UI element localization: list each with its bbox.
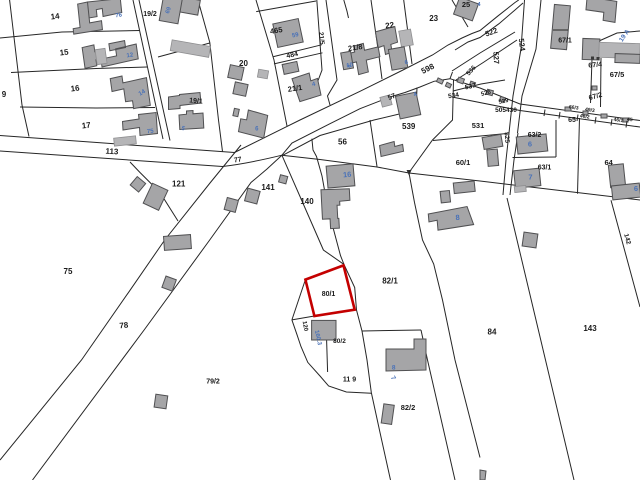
svg-text:22: 22 (385, 20, 396, 30)
svg-text:65: 65 (568, 117, 576, 124)
svg-text:19/2: 19/2 (143, 11, 157, 18)
svg-text:56: 56 (338, 138, 347, 147)
svg-text:17: 17 (81, 120, 91, 130)
svg-text:8: 8 (392, 365, 396, 372)
svg-text:84: 84 (488, 328, 497, 337)
svg-text:75: 75 (64, 267, 73, 276)
svg-text:6: 6 (634, 184, 638, 193)
svg-text:78: 78 (119, 321, 129, 331)
svg-text:45: 45 (627, 117, 634, 124)
svg-text:79/2: 79/2 (206, 379, 220, 386)
svg-text:82/1: 82/1 (382, 277, 398, 286)
svg-text:67/5: 67/5 (610, 70, 625, 79)
svg-text:63/2: 63/2 (528, 132, 542, 139)
svg-text:6: 6 (528, 140, 532, 149)
svg-text:140: 140 (300, 197, 314, 206)
svg-text:20: 20 (239, 59, 248, 68)
svg-text:8: 8 (455, 213, 460, 222)
svg-text:67/1: 67/1 (558, 38, 572, 45)
svg-text:121: 121 (172, 180, 186, 189)
svg-text:505430: 505430 (495, 107, 517, 114)
svg-text:527: 527 (491, 51, 501, 64)
svg-text:9: 9 (2, 90, 7, 99)
svg-text:113: 113 (105, 147, 119, 157)
svg-text:60/1: 60/1 (456, 158, 471, 167)
svg-text:21/5: 21/5 (317, 32, 325, 46)
svg-text:539: 539 (402, 122, 416, 131)
svg-text:16: 16 (343, 170, 352, 180)
svg-text:7: 7 (528, 173, 532, 182)
svg-text:64: 64 (605, 158, 614, 167)
svg-text:80/2: 80/2 (333, 338, 346, 345)
svg-text:524: 524 (517, 38, 528, 52)
svg-text:14: 14 (50, 11, 60, 21)
svg-text:531: 531 (472, 121, 485, 130)
svg-text:23: 23 (429, 14, 438, 23)
svg-text:82/2: 82/2 (401, 403, 416, 412)
svg-text:25: 25 (462, 0, 470, 9)
svg-text:141: 141 (261, 183, 275, 192)
svg-text:77: 77 (233, 156, 242, 164)
svg-text:67/4: 67/4 (588, 61, 602, 69)
svg-text:525: 525 (503, 132, 511, 144)
svg-text:15: 15 (59, 47, 69, 57)
svg-text:80/1: 80/1 (322, 291, 336, 298)
svg-text:16: 16 (70, 83, 80, 93)
svg-text:63/1: 63/1 (538, 165, 552, 172)
svg-text:19/1: 19/1 (189, 97, 203, 105)
svg-text:143: 143 (583, 324, 597, 333)
svg-text:11 9: 11 9 (343, 377, 356, 384)
